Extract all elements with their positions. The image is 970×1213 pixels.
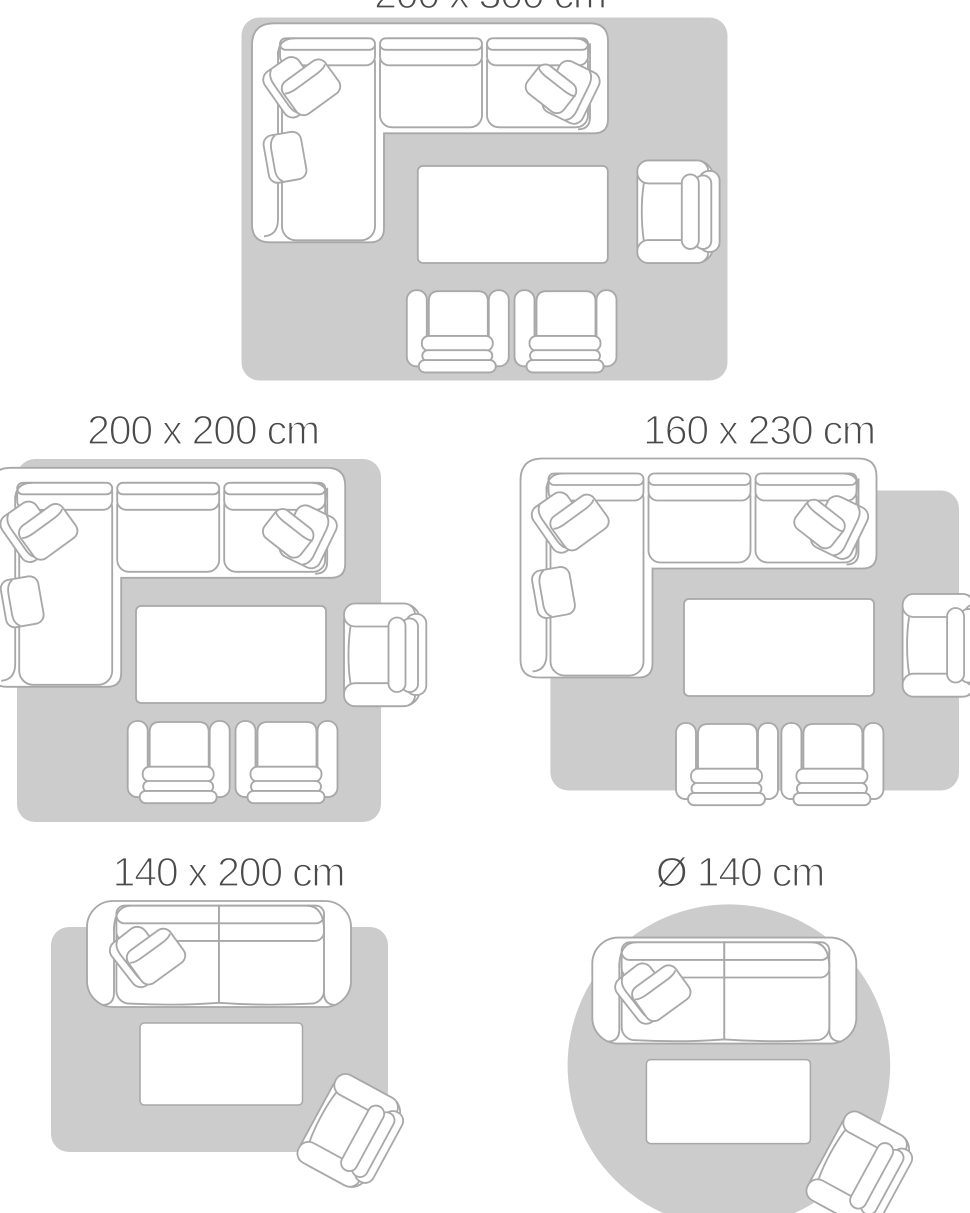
svg-text:140 x 200 cm: 140 x 200 cm [113,849,345,895]
svg-text:Ø 140 cm: Ø 140 cm [656,849,824,895]
svg-text:200 x 300 cm: 200 x 300 cm [374,0,606,17]
svg-text:200 x 200 cm: 200 x 200 cm [87,407,319,453]
svg-text:160 x 230 cm: 160 x 230 cm [643,407,875,453]
